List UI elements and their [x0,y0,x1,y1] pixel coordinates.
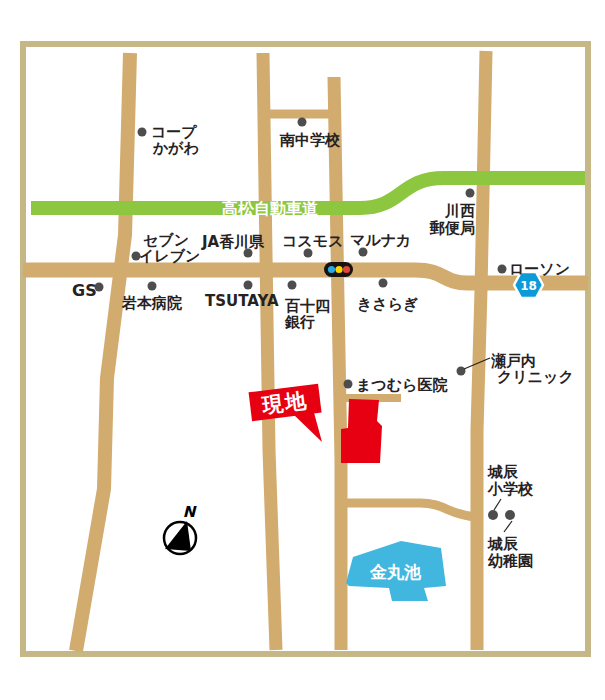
shirotatsu-elementary-dot [488,510,498,520]
lawson-label: ローソン [509,260,570,278]
compass-north-label: N [183,503,197,521]
kawanishi-post-office-label-1: 川西 [444,202,475,220]
tsutaya-dot [244,281,253,290]
shirotatsu-kindergarten-label-1: 城辰 [487,535,519,553]
expressway-label: 高松自動車道 [222,199,319,218]
hyakujushi-bank-dot [288,281,297,290]
location-map: 高松自動車道 18 金丸池 [0,0,605,700]
route-badge-number: 18 [520,279,537,293]
minami-junior-high-dot [298,118,307,127]
matsumura-clinic-label: まつむら医院 [356,376,448,394]
ja-kagawa-label: JA香川県 [201,233,264,251]
shirotatsu-kindergarten-label-2: 幼稚園 [488,552,533,570]
signal-yellow-light [335,266,342,273]
lawson-dot [498,265,507,274]
coop-kagawa-label-2: かがわ [152,139,199,157]
seven-eleven-label-2: イレブン [139,247,200,265]
setouchi-clinic-dot [457,367,466,376]
iwamoto-hospital-dot [148,282,157,291]
kawanishi-post-office-label-2: 郵便局 [429,219,475,237]
shirotatsu-elementary-label-2: 小学校 [487,480,534,498]
signal-red-light [343,266,350,273]
traffic-signal-icon [324,262,353,277]
pond-label: 金丸池 [369,562,422,582]
kisaragi-label: きさらぎ [357,295,418,313]
kawanishi-post-office-dot [466,189,475,198]
shirotatsu-kindergarten-dot [505,510,515,520]
coop-kagawa-dot [138,128,147,137]
kisaragi-dot [379,279,388,288]
road-center [334,77,341,650]
cosmos-label: コスモス [282,232,343,250]
gs-label: GS [72,281,97,300]
matsumura-clinic-dot [344,380,353,389]
marunaka-label: マルナカ [350,231,411,249]
minami-junior-high-label: 南中学校 [279,131,341,149]
tsutaya-label: TSUTAYA [205,292,279,310]
setouchi-clinic-label-2: クリニック [497,368,574,386]
map-canvas: 高松自動車道 18 金丸池 [0,0,605,700]
signal-blue-light [328,266,335,273]
iwamoto-hospital-label: 岩本病院 [121,294,183,312]
shirotatsu-elementary-label-1: 城辰 [487,463,519,481]
hyakujushi-bank-label-2: 銀行 [284,313,315,331]
